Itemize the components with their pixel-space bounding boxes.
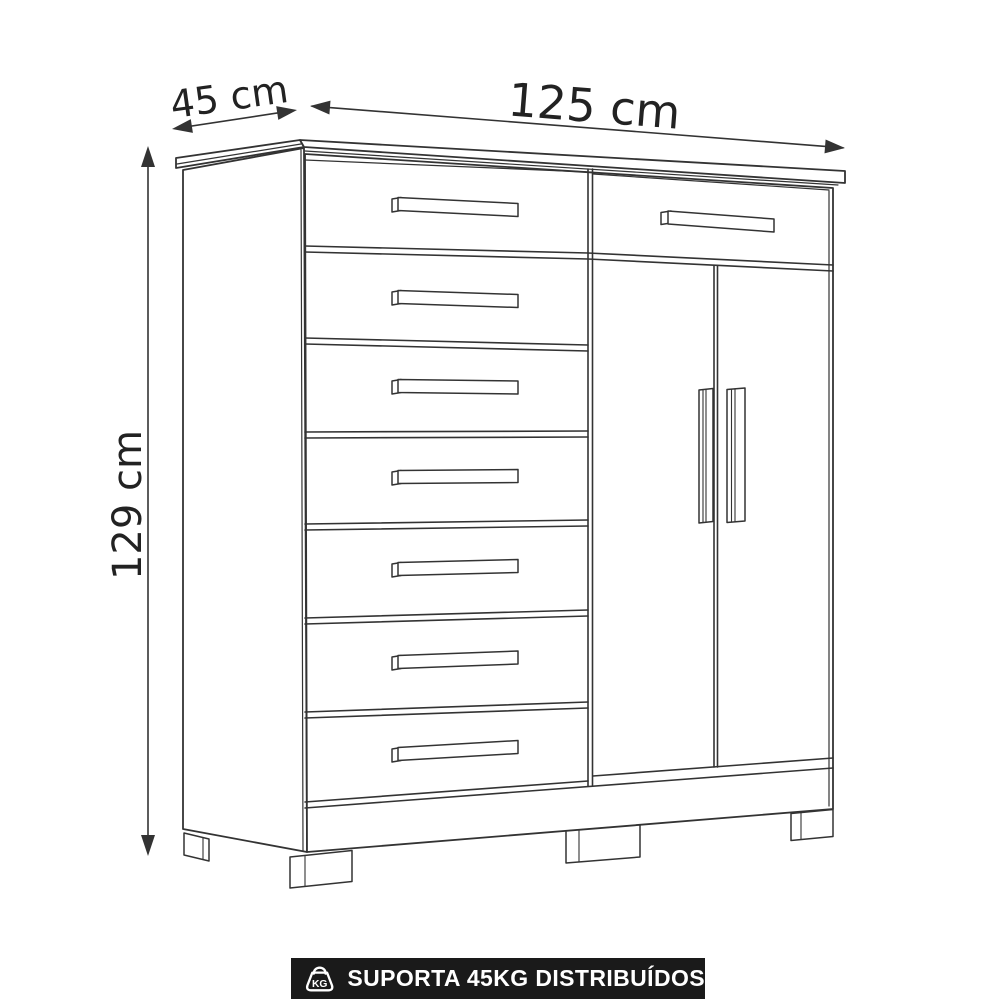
leg-4 — [791, 810, 833, 841]
depth-label: 45 cm — [168, 67, 291, 127]
width-arrowhead-left — [310, 101, 331, 115]
height-dimension: 129 cm — [105, 146, 155, 856]
leg-3 — [566, 825, 640, 863]
left-door-handle — [699, 389, 713, 524]
kg-weight-icon: KG — [303, 963, 336, 995]
weight-capacity-badge: KG SUPORTA 45KG DISTRIBUÍDOS — [291, 958, 705, 999]
depth-dimension: 45 cm — [168, 67, 297, 133]
width-label: 125 cm — [506, 72, 682, 139]
side-panel — [183, 148, 307, 852]
height-arrowhead-bottom — [141, 835, 155, 856]
height-label: 129 cm — [105, 430, 151, 580]
weight-capacity-label: SUPORTA 45KG DISTRIBUÍDOS — [347, 965, 705, 992]
width-arrowhead-right — [825, 140, 846, 154]
furniture-dimension-diagram: 45 cm 125 cm 129 cm KG SUPORTA 45KG DIST… — [0, 0, 1000, 1000]
height-arrowhead-top — [141, 146, 155, 167]
leg-2 — [290, 851, 352, 889]
right-door-handle — [727, 388, 745, 523]
width-dimension: 125 cm — [310, 72, 845, 153]
drawer-4-handle — [392, 470, 518, 486]
leg-1 — [184, 833, 209, 861]
cabinet-line-drawing: 45 cm 125 cm 129 cm — [0, 0, 1000, 1000]
drawer-3-handle — [392, 380, 518, 395]
kg-weight-icon-text: KG — [312, 978, 327, 989]
